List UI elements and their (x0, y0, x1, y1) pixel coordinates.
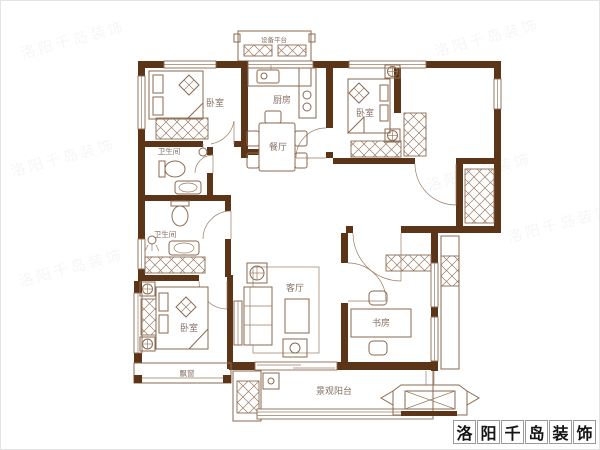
floor-plan-image: 洛阳千岛装饰 洛阳千岛装饰 洛阳千岛装饰 洛阳千岛装饰 洛阳千岛装饰 洛阳千岛装… (0, 0, 600, 450)
floor-plan-drawing: 设备平台 (1, 1, 600, 450)
brand-char: 千 (501, 420, 524, 444)
bath-lower-label: 卫生间 (154, 229, 177, 239)
kitchen-label: 厨房 (273, 94, 291, 105)
balcony-label: 景观阳台 (316, 385, 352, 396)
bedroom-top-right-label: 卧室 (356, 107, 374, 118)
room-living: 客厅 (244, 263, 319, 357)
room-bath-lower: 卫生间 (145, 201, 205, 273)
brand-char: 装 (549, 420, 572, 444)
brand-char: 岛 (525, 420, 548, 444)
living-label: 客厅 (286, 282, 304, 293)
equipment-platform-label: 设备平台 (261, 35, 287, 44)
dining-label: 餐厅 (269, 141, 287, 152)
bath-upper-label: 卫生间 (158, 146, 181, 156)
room-dining: 餐厅 (247, 111, 307, 171)
room-bedroom-top-left: 卧室 (149, 71, 224, 139)
balcony-sliding-door (255, 362, 337, 370)
bedroom-top-left-label: 卧室 (206, 97, 224, 108)
room-bedroom-top-right: 卧室 (348, 65, 426, 157)
brand-char: 洛 (453, 420, 476, 444)
bay-window-label: 飘窗 (180, 368, 195, 378)
room-kitchen: 厨房 (248, 65, 316, 118)
brand-char: 饰 (573, 420, 596, 444)
bay-window: 飘窗 (134, 363, 231, 383)
equipment-platform: 设备平台 (234, 31, 315, 61)
room-study: 书房 (351, 255, 431, 355)
brand-mark: 洛 阳 千 岛 装 饰 (452, 420, 596, 444)
stair-shaft (465, 169, 494, 223)
ac-ledge (441, 236, 459, 369)
study-label: 书房 (372, 317, 390, 328)
bedroom-bottom-left-label: 卧室 (180, 322, 198, 333)
room-bath-upper: 卫生间 (158, 144, 207, 194)
brand-char: 阳 (477, 420, 500, 444)
